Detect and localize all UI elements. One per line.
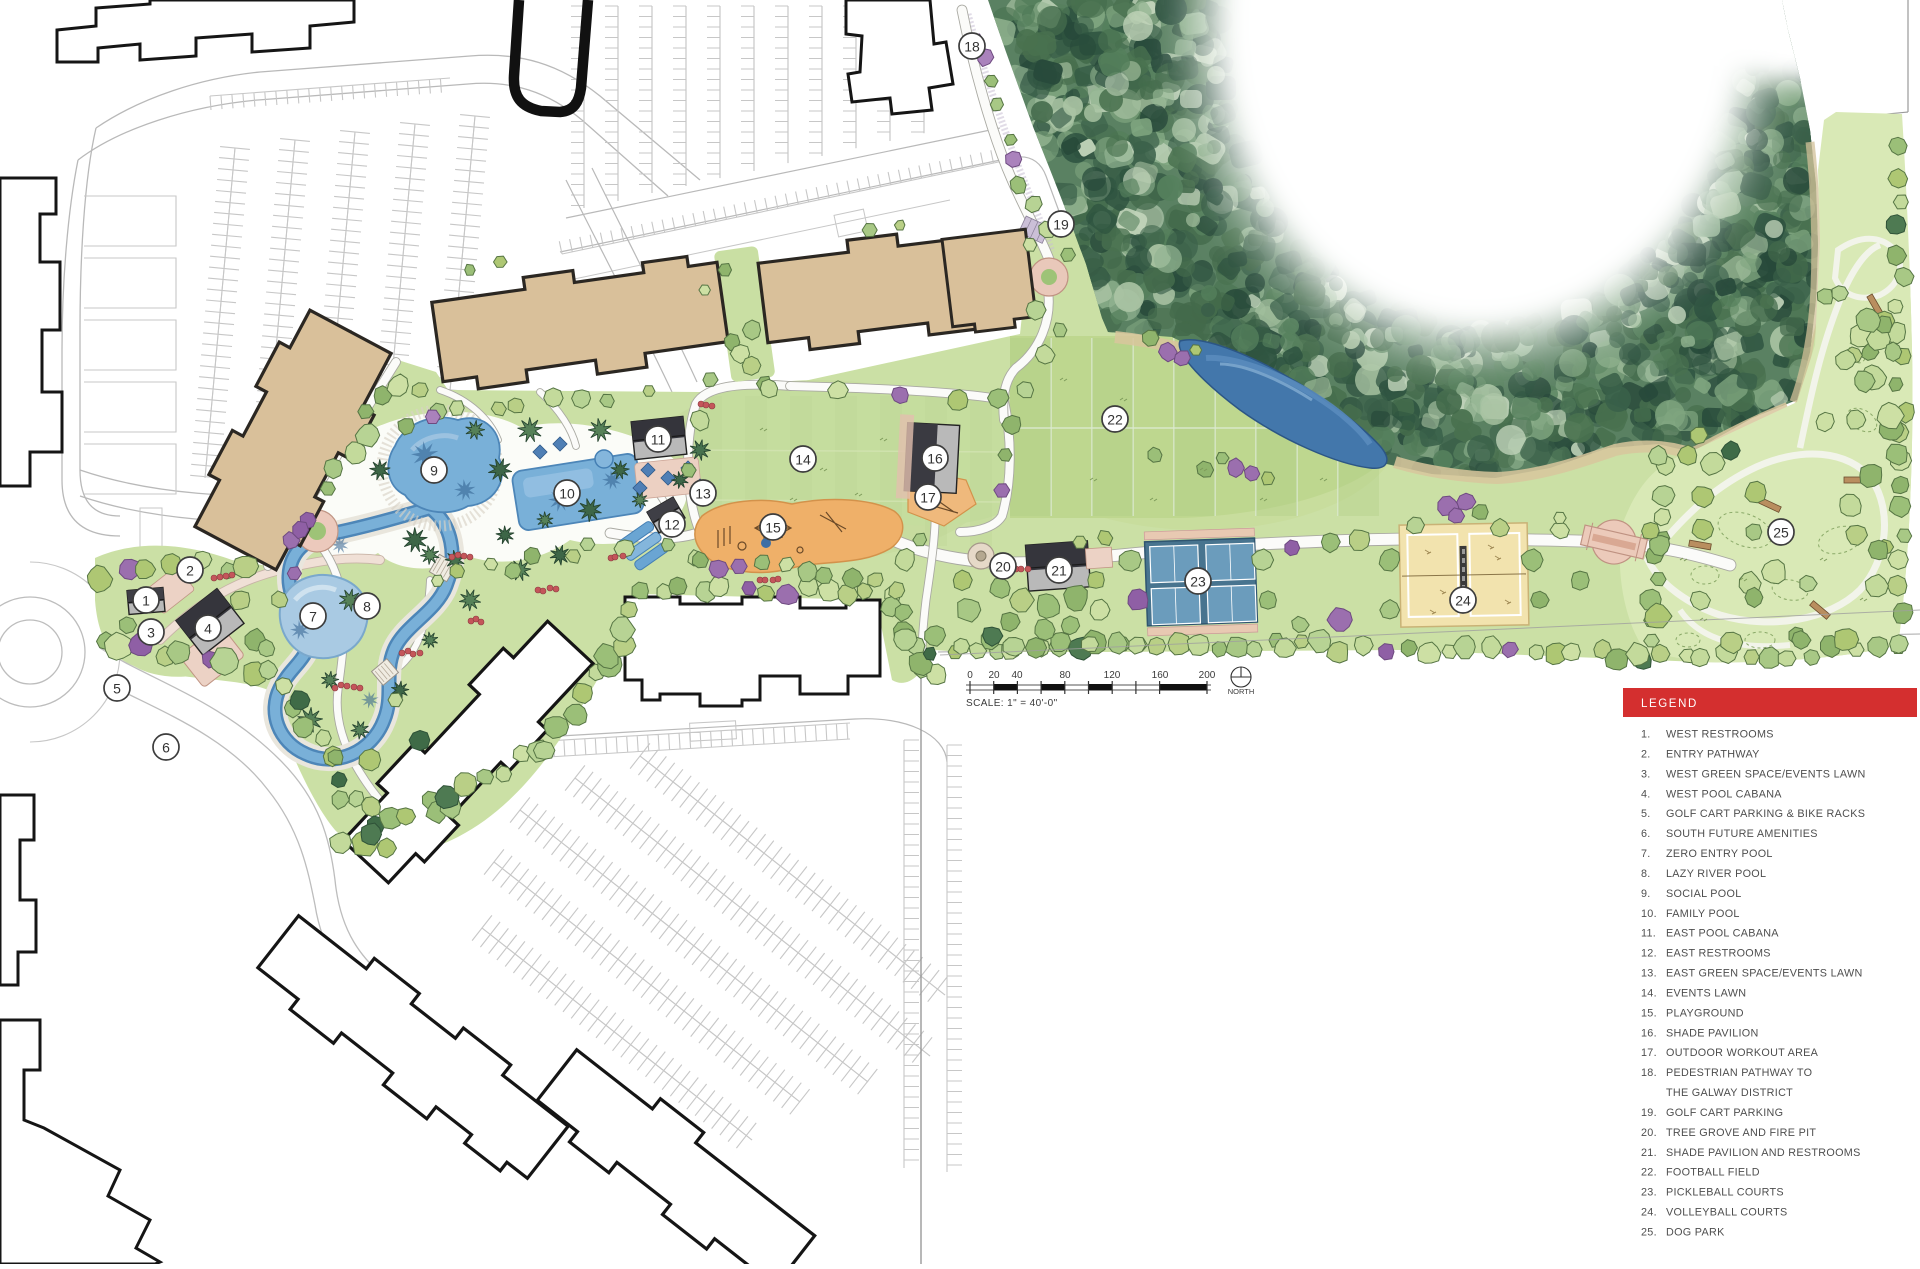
svg-text:15.: 15. [1641,1007,1657,1019]
svg-text:8.: 8. [1641,868,1651,880]
svg-text:WEST RESTROOMS: WEST RESTROOMS [1666,729,1774,741]
svg-text:19: 19 [1053,217,1069,233]
svg-text:200: 200 [1199,670,1216,681]
svg-text:GOLF CART PARKING: GOLF CART PARKING [1666,1107,1783,1119]
svg-text:1: 1 [142,593,150,609]
svg-text:EAST RESTROOMS: EAST RESTROOMS [1666,948,1771,960]
svg-text:SOCIAL POOL: SOCIAL POOL [1666,888,1742,900]
svg-text:16: 16 [927,451,943,467]
svg-text:15: 15 [765,520,781,536]
svg-text:22: 22 [1107,412,1123,428]
svg-text:1.: 1. [1641,729,1651,741]
svg-text:EAST GREEN SPACE/EVENTS LAWN: EAST GREEN SPACE/EVENTS LAWN [1666,968,1863,980]
svg-text:19.: 19. [1641,1107,1657,1119]
svg-text:4.: 4. [1641,788,1651,800]
svg-text:ZERO ENTRY POOL: ZERO ENTRY POOL [1666,848,1773,860]
svg-text:18: 18 [964,39,980,55]
svg-text:8: 8 [363,599,371,615]
svg-text:SOUTH FUTURE AMENITIES: SOUTH FUTURE AMENITIES [1666,828,1818,840]
svg-text:11: 11 [651,432,666,448]
svg-text:21.: 21. [1641,1147,1657,1159]
svg-text:17.: 17. [1641,1047,1657,1059]
svg-text:9.: 9. [1641,888,1651,900]
svg-text:WEST GREEN SPACE/EVENTS LAWN: WEST GREEN SPACE/EVENTS LAWN [1666,768,1866,780]
svg-text:5: 5 [113,681,121,697]
svg-text:20.: 20. [1641,1127,1657,1139]
svg-text:EAST POOL CABANA: EAST POOL CABANA [1666,928,1779,940]
svg-text:21: 21 [1051,563,1067,579]
svg-text:0: 0 [967,670,973,681]
svg-text:18.: 18. [1641,1067,1657,1079]
svg-text:SHADE PAVILION AND RESTROOMS: SHADE PAVILION AND RESTROOMS [1666,1147,1861,1159]
svg-text:24.: 24. [1641,1207,1657,1219]
svg-text:ENTRY PATHWAY: ENTRY PATHWAY [1666,748,1760,760]
svg-text:THE GALWAY DISTRICT: THE GALWAY DISTRICT [1666,1087,1793,1099]
svg-text:SCALE: 1" = 40'-0": SCALE: 1" = 40'-0" [966,698,1058,709]
svg-text:FAMILY POOL: FAMILY POOL [1666,908,1740,920]
svg-text:2: 2 [186,563,194,579]
svg-text:13.: 13. [1641,968,1657,980]
svg-text:80: 80 [1059,670,1071,681]
svg-text:20: 20 [995,559,1011,575]
svg-text:4: 4 [204,621,212,637]
svg-text:3.: 3. [1641,768,1651,780]
svg-text:40: 40 [1011,670,1023,681]
svg-text:120: 120 [1104,670,1121,681]
svg-text:25.: 25. [1641,1227,1657,1239]
svg-text:DOG PARK: DOG PARK [1666,1227,1725,1239]
svg-text:PEDESTRIAN PATHWAY TO: PEDESTRIAN PATHWAY TO [1666,1067,1812,1079]
svg-text:FOOTBALL FIELD: FOOTBALL FIELD [1666,1167,1760,1179]
svg-text:9: 9 [430,463,438,479]
svg-text:23.: 23. [1641,1187,1657,1199]
svg-text:VOLLEYBALL COURTS: VOLLEYBALL COURTS [1666,1207,1788,1219]
svg-text:TREE GROVE AND FIRE PIT: TREE GROVE AND FIRE PIT [1666,1127,1816,1139]
svg-text:7: 7 [309,609,317,625]
svg-text:2.: 2. [1641,748,1651,760]
svg-text:11.: 11. [1641,928,1656,940]
svg-text:12.: 12. [1641,948,1657,960]
svg-text:5.: 5. [1641,808,1651,820]
svg-text:6.: 6. [1641,828,1651,840]
svg-text:LEGEND: LEGEND [1641,698,1698,710]
svg-text:SHADE PAVILION: SHADE PAVILION [1666,1027,1759,1039]
svg-text:160: 160 [1152,670,1169,681]
svg-text:10: 10 [559,486,575,502]
svg-text:10.: 10. [1641,908,1657,920]
svg-text:GOLF CART PARKING & BIKE RACKS: GOLF CART PARKING & BIKE RACKS [1666,808,1865,820]
svg-text:14.: 14. [1641,988,1657,1000]
svg-text:PLAYGROUND: PLAYGROUND [1666,1007,1744,1019]
svg-text:3: 3 [147,625,155,641]
svg-text:NORTH: NORTH [1228,687,1255,696]
svg-text:12: 12 [664,517,680,533]
svg-text:22.: 22. [1641,1167,1657,1179]
svg-text:WEST POOL CABANA: WEST POOL CABANA [1666,788,1782,800]
svg-text:13: 13 [695,486,711,502]
svg-text:OUTDOOR WORKOUT AREA: OUTDOOR WORKOUT AREA [1666,1047,1819,1059]
svg-text:20: 20 [988,670,1000,681]
svg-text:LAZY RIVER POOL: LAZY RIVER POOL [1666,868,1766,880]
svg-text:6: 6 [162,740,170,756]
svg-text:17: 17 [920,490,936,506]
svg-text:PICKLEBALL COURTS: PICKLEBALL COURTS [1666,1187,1784,1199]
svg-text:23: 23 [1190,574,1206,590]
svg-text:24: 24 [1455,593,1471,609]
svg-text:14: 14 [795,452,811,468]
svg-text:EVENTS LAWN: EVENTS LAWN [1666,988,1746,1000]
svg-text:16.: 16. [1641,1027,1657,1039]
svg-text:7.: 7. [1641,848,1651,860]
svg-text:25: 25 [1773,525,1789,541]
